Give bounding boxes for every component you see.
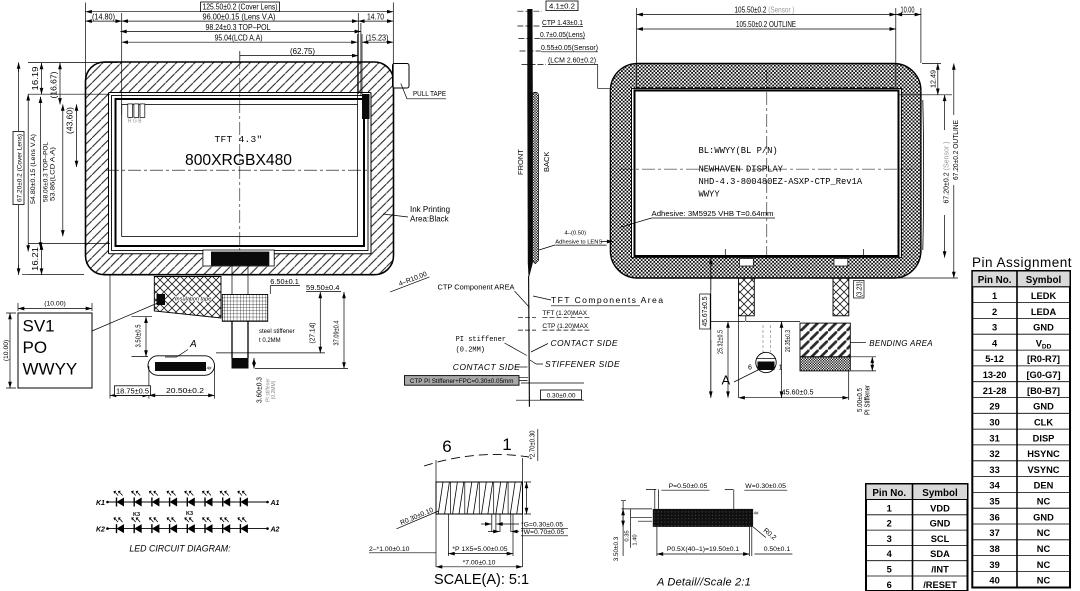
svg-text:LEDA: LEDA [1031,307,1057,317]
svg-text:25.32±0.5: 25.32±0.5 [718,330,725,354]
svg-text:4#: 4# [207,366,213,371]
svg-text:WWYY: WWYY [23,360,78,379]
svg-text:Symbol: Symbol [922,488,958,499]
svg-text:TFT (1.20)MAX: TFT (1.20)MAX [542,310,587,317]
svg-text:NHD-4.3-800480EZ-ASXP-CTP_Rev1: NHD-4.3-800480EZ-ASXP-CTP_Rev1A [699,177,863,187]
svg-text:39: 39 [989,560,999,570]
svg-text:67.20±0.2 (Cover Lens): 67.20±0.2 (Cover Lens) [16,134,23,202]
svg-text:DISP: DISP [1033,433,1055,443]
svg-text:3.50±0.5: 3.50±0.5 [136,324,143,347]
svg-text:(LCM 2.60±0.2): (LCM 2.60±0.2) [548,56,596,65]
svg-text:CTP 1.43±0.1: CTP 1.43±0.1 [542,18,583,27]
svg-text:0.7±0.05(Lens): 0.7±0.05(Lens) [540,30,585,39]
svg-text:*W=0.70±0.05: *W=0.70±0.05 [521,529,564,536]
svg-text:0.55±0.05(Sensor): 0.55±0.05(Sensor) [541,43,598,52]
svg-text:95.04(LCD A.A): 95.04(LCD A.A) [215,33,263,43]
svg-text:5-12: 5-12 [985,354,1004,364]
svg-text:4–(0.50): 4–(0.50) [565,231,587,237]
svg-text:6.50±0.1: 6.50±0.1 [270,277,299,286]
svg-text:P=0.50±0.05: P=0.50±0.05 [669,483,708,490]
svg-text:SCALE(A): 5:1: SCALE(A): 5:1 [434,572,529,588]
svg-text:t 0.2MM: t 0.2MM [259,338,281,344]
svg-text:125.50±0.2 (Cover Lens): 125.50±0.2 (Cover Lens) [203,1,278,11]
svg-text:(62.75): (62.75) [290,46,315,56]
svg-text:Insulation tape: Insulation tape [175,297,211,303]
svg-text:TFT 4.3": TFT 4.3" [214,134,262,145]
svg-text:37: 37 [989,528,999,538]
svg-text:(0.2MM): (0.2MM) [456,347,485,355]
svg-text:34: 34 [989,481,1000,491]
svg-text:A: A [189,339,197,350]
svg-text:1.40: 1.40 [633,534,639,545]
svg-text:1: 1 [779,365,783,372]
svg-text:GND: GND [1033,323,1054,333]
svg-text:Symbol: Symbol [1026,275,1062,286]
svg-text:(10.00): (10.00) [3,340,10,362]
svg-text:Pin No.: Pin No. [978,275,1012,286]
svg-text:GND: GND [930,519,951,529]
svg-text:STIFFENER SIDE: STIFFENER SIDE [545,359,620,369]
svg-text:32: 32 [989,449,999,459]
svg-text:CTP (1.20)MAX: CTP (1.20)MAX [542,323,588,330]
svg-text:31: 31 [989,433,999,443]
svg-text:37.09±0.4: 37.09±0.4 [333,320,340,345]
svg-text:33: 33 [989,465,999,475]
svg-text:16.19: 16.19 [31,66,40,91]
svg-text:HSYNC: HSYNC [1027,449,1060,459]
svg-text:TFT Components Area: TFT Components Area [551,295,664,305]
svg-text:PI stiffener: PI stiffener [456,336,506,344]
svg-text:0.35: 0.35 [625,530,631,541]
svg-text:[G0-G7]: [G0-G7] [1026,370,1060,380]
svg-text:38: 38 [989,544,999,554]
svg-text:16.21: 16.21 [31,246,40,271]
svg-text:2: 2 [887,519,892,529]
svg-text:(10.00): (10.00) [44,301,66,308]
svg-text:10.00: 10.00 [901,5,915,14]
svg-text:800XRGBX480: 800XRGBX480 [185,152,292,169]
svg-text:GND: GND [1033,402,1054,412]
svg-text:(14.80): (14.80) [92,11,115,21]
svg-text:Ink Printing: Ink Printing [410,205,450,214]
svg-text:4: 4 [887,549,893,559]
svg-text:(15.23): (15.23) [366,33,389,43]
svg-text:steel stiffener: steel stiffener [259,329,295,335]
svg-text:29: 29 [989,402,999,412]
svg-text:SDA: SDA [930,549,950,559]
svg-text:NEWHAVEN DISPLAY: NEWHAVEN DISPLAY [699,165,784,175]
svg-text:Pin No.: Pin No. [872,488,906,499]
svg-text:PO: PO [23,338,48,357]
svg-text:LED CIRCUIT DIAGRAM:: LED CIRCUIT DIAGRAM: [129,544,231,554]
svg-text:Adhesive to LENS: Adhesive to LENS [555,240,602,246]
svg-text:96.00±0.15 (Lens V.A): 96.00±0.15 (Lens V.A) [203,11,276,21]
svg-text:NC: NC [1037,560,1051,570]
svg-text:5: 5 [887,565,892,575]
svg-text:FRONT: FRONT [516,149,525,175]
svg-text:A Detail//Scale 2:1: A Detail//Scale 2:1 [656,577,751,589]
svg-text:VSYNC: VSYNC [1027,465,1059,475]
svg-text:(43.60): (43.60) [66,107,75,134]
svg-text:0.30±0.00: 0.30±0.00 [547,392,576,399]
svg-text:SCL: SCL [931,534,950,544]
svg-text:K1: K1 [96,500,105,507]
svg-text:6: 6 [442,437,451,456]
svg-text:1: 1 [502,435,511,454]
svg-text:CONTACT SIDE: CONTACT SIDE [551,338,618,348]
svg-text:58.06±0.3 TOP–POL: 58.06±0.3 TOP–POL [42,141,49,202]
svg-text:BACK: BACK [542,152,551,172]
svg-text:4.1±0.2: 4.1±0.2 [549,2,575,11]
svg-text:CTP PI Stiffener+FPC=0.30±0.: CTP PI Stiffener+FPC=0.30±0.05mm [410,378,514,385]
svg-text:98.24±0.3 TOP–POL: 98.24±0.3 TOP–POL [206,22,271,32]
svg-text:[B0-B7]: [B0-B7] [1027,386,1060,396]
svg-text:Adhesive: 3M5925 VHB T=0.64mm: Adhesive: 3M5925 VHB T=0.64mm [652,209,774,218]
svg-text:12.49: 12.49 [929,70,938,88]
svg-text:/RESET: /RESET [923,580,957,590]
svg-text:6: 6 [748,365,752,372]
svg-text:CONTACT SIDE: CONTACT SIDE [453,362,520,372]
svg-text:(3.23): (3.23) [857,281,864,297]
svg-text:67.20±0.2 OUTLINE: 67.20±0.2 OUTLINE [953,120,960,180]
svg-text:14.70: 14.70 [367,11,384,21]
svg-text:P0.5X(40–1)=19.50±0.1: P0.5X(40–1)=19.50±0.1 [667,546,740,553]
svg-text:40: 40 [989,576,999,586]
svg-text:SV1: SV1 [23,317,55,336]
svg-text:LEDK: LEDK [1031,291,1057,301]
svg-text:*G=0.30±0.05: *G=0.30±0.05 [521,522,563,529]
svg-text:3.50±0.3: 3.50±0.3 [613,536,620,561]
svg-text:BENDING AREA: BENDING AREA [869,339,933,348]
svg-text:[R0-R7]: [R0-R7] [1027,354,1060,364]
svg-text:VDD: VDD [930,503,950,513]
svg-text:(0.2MM): (0.2MM) [271,380,277,399]
svg-text:A2: A2 [270,527,280,534]
svg-text:(16.67): (16.67) [50,71,59,98]
svg-text:67.20±0.2 (Sensor ): 67.20±0.2 (Sensor ) [944,142,951,204]
svg-text:20.35±0.3: 20.35±0.3 [785,330,792,352]
svg-text:*P 1X5=5.00±0.05: *P 1X5=5.00±0.05 [452,546,507,553]
svg-text:59.50±0.4: 59.50±0.4 [306,283,340,292]
svg-text:NC: NC [1037,544,1051,554]
svg-text:Area:Black: Area:Black [410,215,450,224]
svg-text:Pin Assignment: Pin Assignment [972,255,1072,270]
svg-text:WWYY: WWYY [699,190,721,200]
svg-text:30: 30 [989,418,999,428]
svg-text:CTP Component AREA: CTP Component AREA [438,283,515,292]
svg-text:105.50±0.2 OUTLINE: 105.50±0.2 OUTLINE [736,20,796,29]
svg-text:3: 3 [887,534,892,544]
svg-text:(27.14): (27.14) [310,323,317,344]
svg-text:1: 1 [992,291,997,301]
svg-text:4#: 4# [754,511,760,516]
svg-text:3.60±0.3: 3.60±0.3 [257,377,264,403]
svg-text:3: 3 [992,323,997,333]
svg-text:13-20: 13-20 [983,370,1007,380]
svg-text:R G B: R G B [128,119,142,125]
svg-text:45.67±0.5: 45.67±0.5 [702,296,709,326]
svg-text:DEN: DEN [1034,481,1054,491]
svg-text:/INT: /INT [931,565,949,575]
svg-text:18.75±0.5: 18.75±0.5 [116,386,149,395]
svg-text:2: 2 [992,307,997,317]
svg-text:36: 36 [989,512,999,522]
svg-text:5.00±0.5: 5.00±0.5 [857,388,864,412]
svg-text:*7.00±0.10: *7.00±0.10 [463,560,496,567]
svg-text:*2.70±0.30: *2.70±0.30 [530,430,537,459]
svg-text:NC: NC [1037,528,1051,538]
svg-text:54.80±0.15 (Lens V.A): 54.80±0.15 (Lens V.A) [30,134,37,204]
svg-text:K3: K3 [133,512,140,518]
svg-text:W=0.30±0.05: W=0.30±0.05 [745,483,786,490]
svg-text:45.60±0.5: 45.60±0.5 [782,388,814,397]
svg-text:21-28: 21-28 [983,386,1007,396]
svg-text:NC: NC [1037,497,1051,507]
svg-text:1: 1 [887,503,892,513]
svg-text:BL:WWYY(BL P/N): BL:WWYY(BL P/N) [699,146,778,156]
svg-text:105.50±0.2 (Sensor ): 105.50±0.2 (Sensor ) [735,5,795,14]
svg-text:35: 35 [989,497,999,507]
svg-text:PULL TAPE: PULL TAPE [413,89,446,98]
svg-text:GND: GND [1033,512,1054,522]
svg-text:2–*1.00±0.10: 2–*1.00±0.10 [369,546,410,553]
svg-text:A: A [722,373,731,388]
svg-text:NC: NC [1037,576,1051,586]
svg-text:K2: K2 [96,527,105,534]
svg-text:0.50±0.1: 0.50±0.1 [764,546,791,553]
svg-text:53.86(LCD A.A): 53.86(LCD A.A) [49,147,56,201]
svg-text:4: 4 [992,338,998,348]
svg-text:A1: A1 [270,500,280,507]
svg-text:K3: K3 [186,511,193,517]
svg-text:CLK: CLK [1034,418,1053,428]
svg-text:20.50±0.2: 20.50±0.2 [166,386,204,395]
svg-text:PI Stiffener: PI Stiffener [865,384,872,415]
svg-text:6: 6 [887,580,892,590]
